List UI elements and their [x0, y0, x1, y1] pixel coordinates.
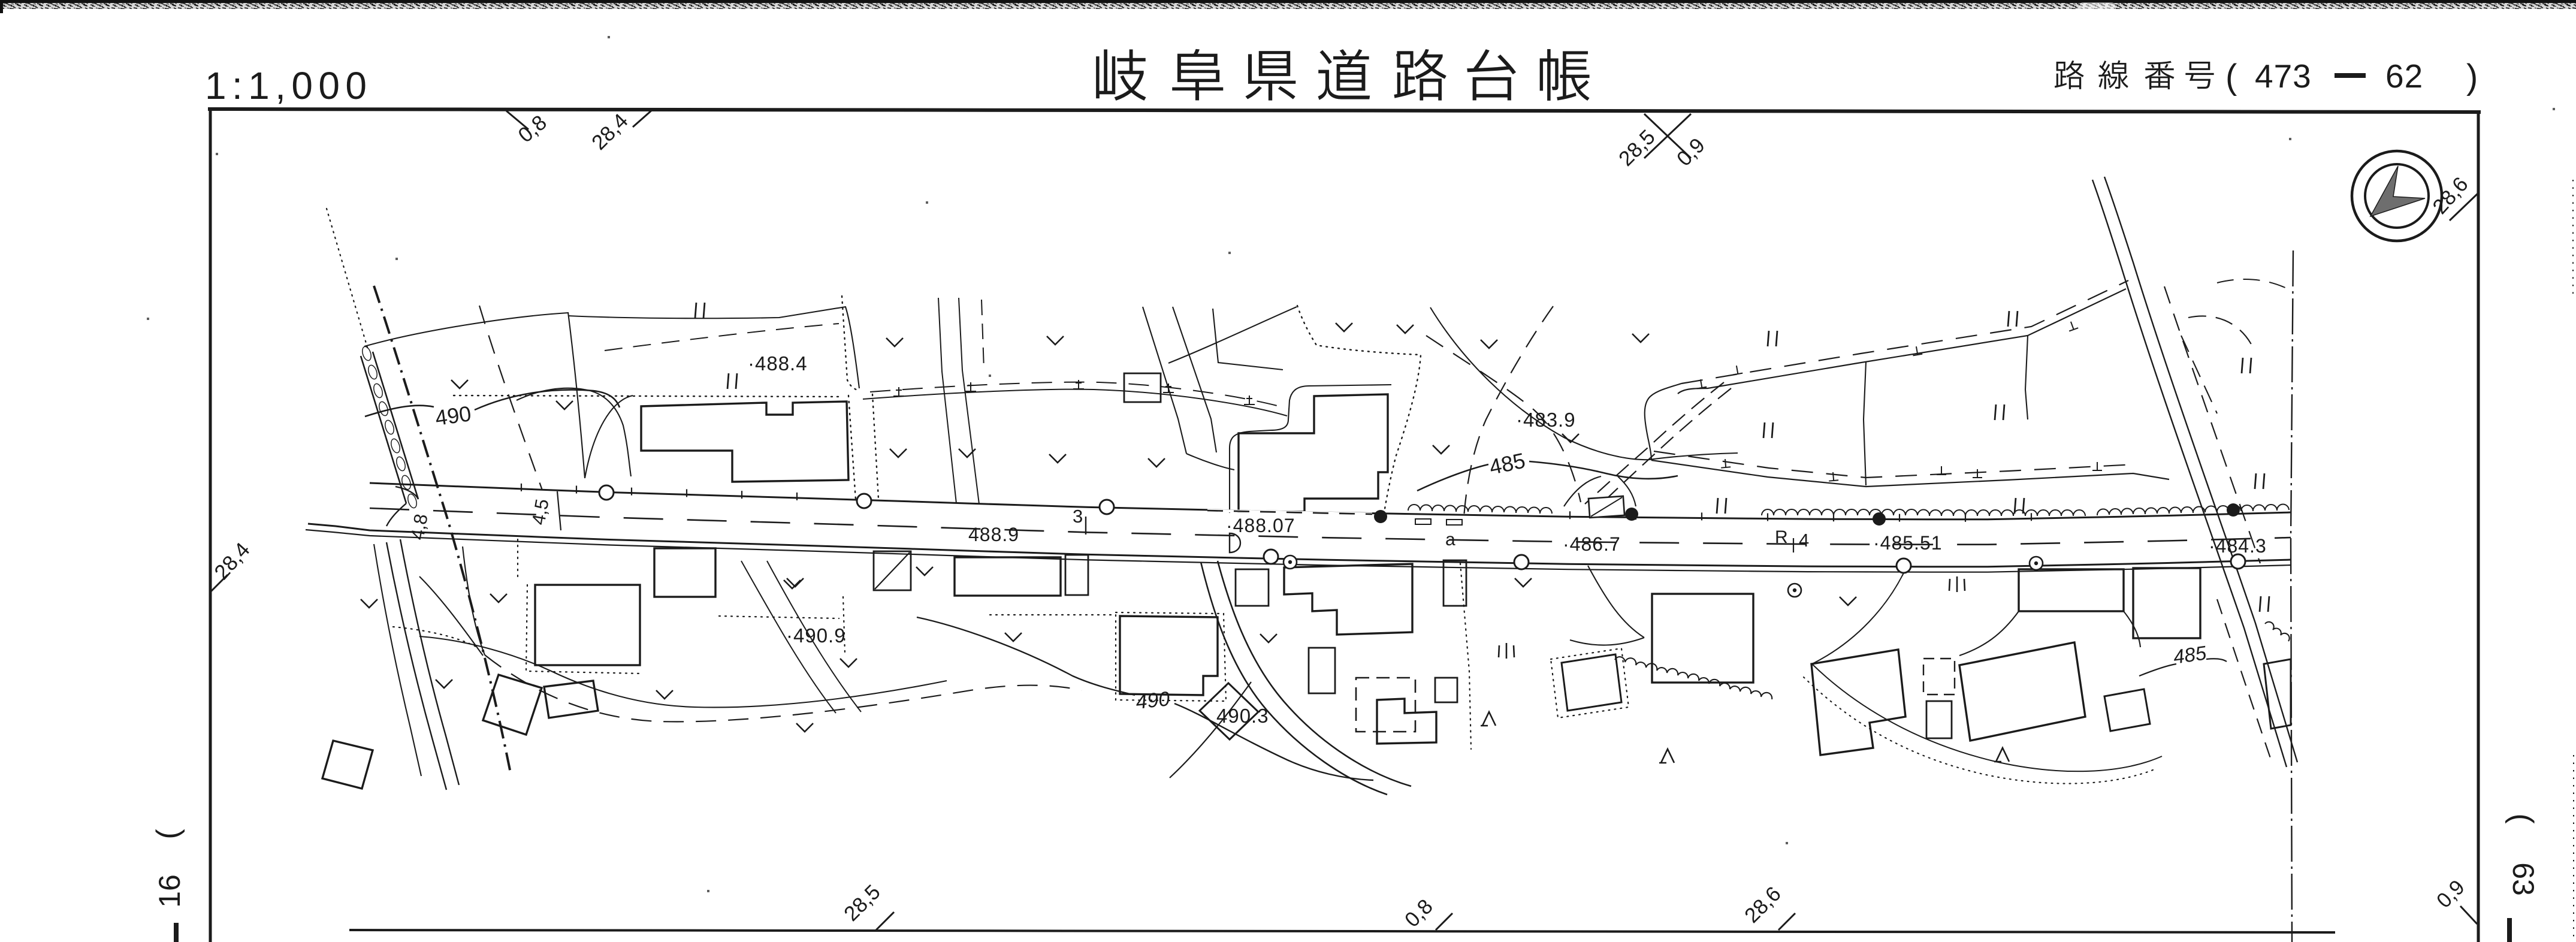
svg-text:): )	[2466, 58, 2478, 96]
svg-text:·485.51: ·485.51	[1873, 532, 1943, 554]
svg-text:R: R	[1775, 527, 1789, 547]
svg-text:488.9: 488.9	[968, 524, 1019, 545]
svg-text:(: (	[2505, 813, 2539, 824]
svg-text:4: 4	[1799, 530, 1810, 551]
svg-text:·484.3: ·484.3	[2209, 535, 2267, 557]
svg-text:4,8: 4,8	[407, 512, 432, 542]
svg-text:·483.9: ·483.9	[1516, 409, 1576, 431]
svg-text:(: (	[150, 829, 185, 840]
svg-text:·488.07: ·488.07	[1226, 515, 1295, 536]
svg-text:1:1,000: 1:1,000	[205, 64, 372, 107]
svg-text:473: 473	[2255, 58, 2312, 95]
svg-text:16: 16	[153, 874, 186, 908]
svg-text:3: 3	[1073, 506, 1083, 527]
svg-text:490.3: 490.3	[1216, 705, 1269, 727]
svg-text:4,5: 4,5	[528, 497, 553, 527]
svg-text:·486.7: ·486.7	[1563, 533, 1621, 555]
svg-text:63: 63	[2506, 862, 2540, 896]
svg-text:62: 62	[2385, 58, 2423, 95]
svg-text:490: 490	[434, 401, 473, 430]
svg-text:·490.9: ·490.9	[786, 624, 846, 647]
svg-text:(: (	[2225, 58, 2237, 96]
svg-text:485: 485	[2172, 641, 2208, 668]
svg-text:·488.4: ·488.4	[748, 352, 808, 375]
svg-text:a: a	[1445, 530, 1456, 549]
